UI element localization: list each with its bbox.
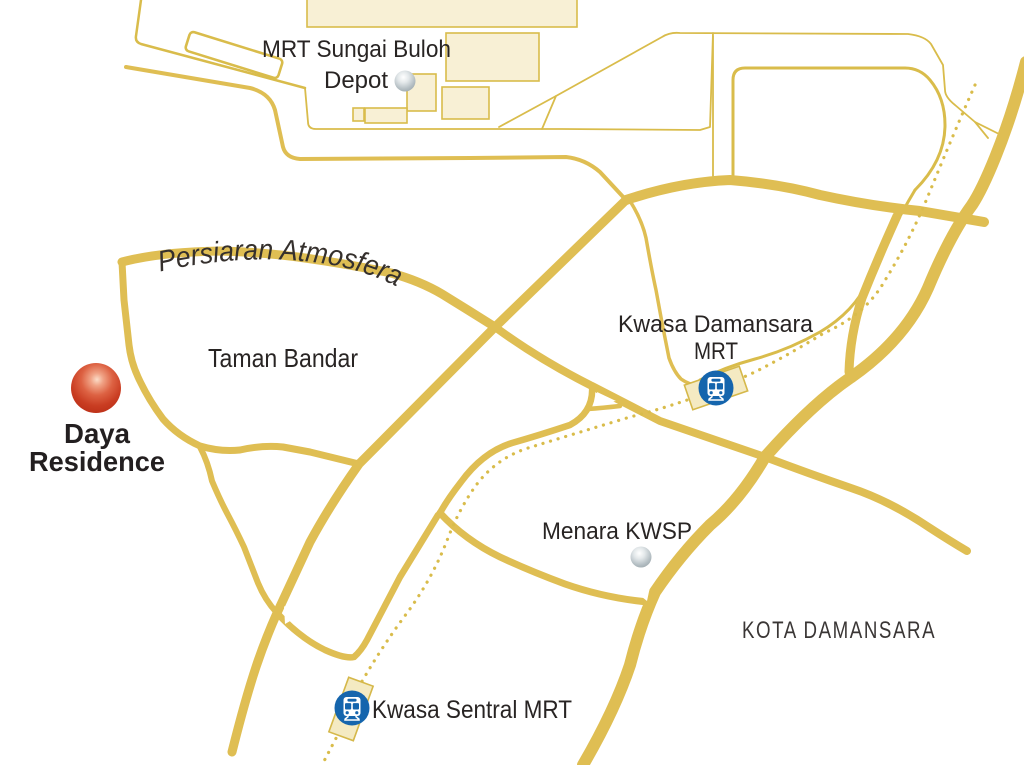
svg-text:Menara KWSP: Menara KWSP: [542, 518, 692, 545]
svg-text:KOTA DAMANSARA: KOTA DAMANSARA: [742, 617, 936, 644]
svg-text:MRT: MRT: [694, 338, 738, 365]
svg-text:Taman Bandar: Taman Bandar: [208, 343, 358, 373]
svg-text:Residence: Residence: [29, 446, 165, 477]
svg-text:MRT Sungai Buloh: MRT Sungai Buloh: [262, 36, 451, 63]
svg-text:Depot: Depot: [324, 67, 388, 94]
svg-text:Daya: Daya: [64, 418, 130, 449]
svg-text:Kwasa Damansara: Kwasa Damansara: [618, 311, 814, 338]
svg-text:Kwasa Sentral MRT: Kwasa Sentral MRT: [372, 696, 572, 724]
